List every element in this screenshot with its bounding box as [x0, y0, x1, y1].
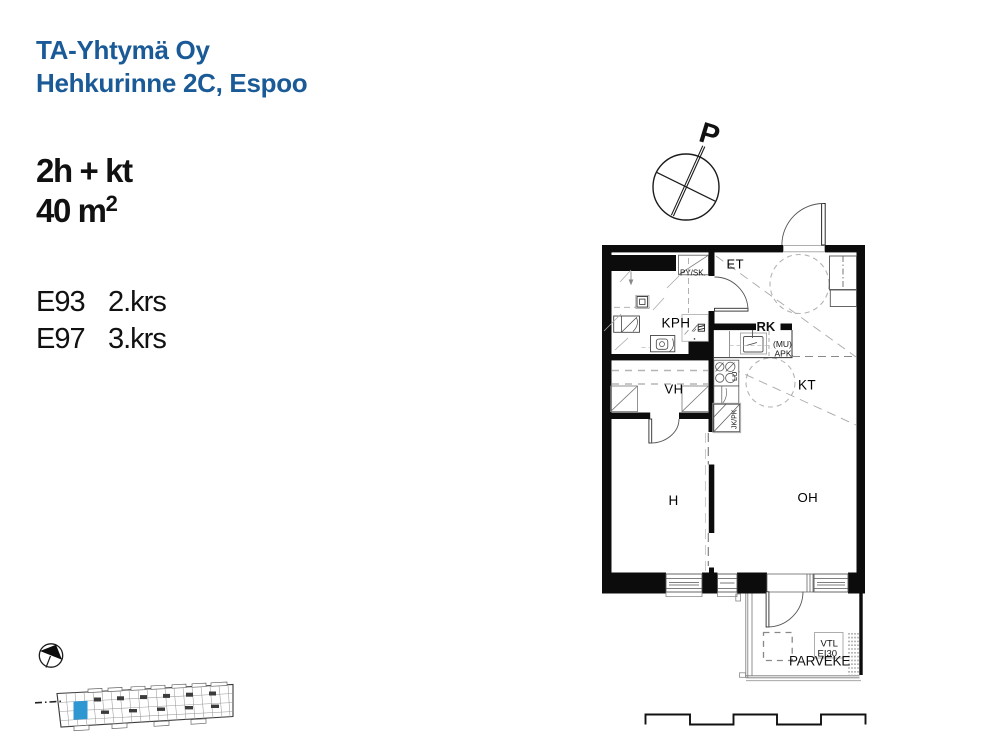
svg-text:APK.: APK. [775, 349, 794, 359]
svg-text:PARVEKE: PARVEKE [789, 654, 850, 669]
svg-text:H: H [669, 493, 679, 508]
svg-text:RK: RK [757, 319, 776, 334]
svg-text:ET: ET [727, 257, 744, 272]
svg-text:JK/PK: JK/PK [732, 409, 739, 429]
svg-text:P: P [695, 117, 723, 153]
svg-text:LU: LU [730, 371, 739, 381]
svg-text:(MU): (MU) [773, 339, 792, 349]
svg-text:KPH: KPH [662, 316, 691, 331]
svg-text:OH: OH [798, 490, 819, 505]
svg-text:KT: KT [798, 378, 816, 393]
svg-text:VH: VH [665, 382, 684, 397]
svg-text:PY/SK.: PY/SK. [680, 269, 706, 278]
